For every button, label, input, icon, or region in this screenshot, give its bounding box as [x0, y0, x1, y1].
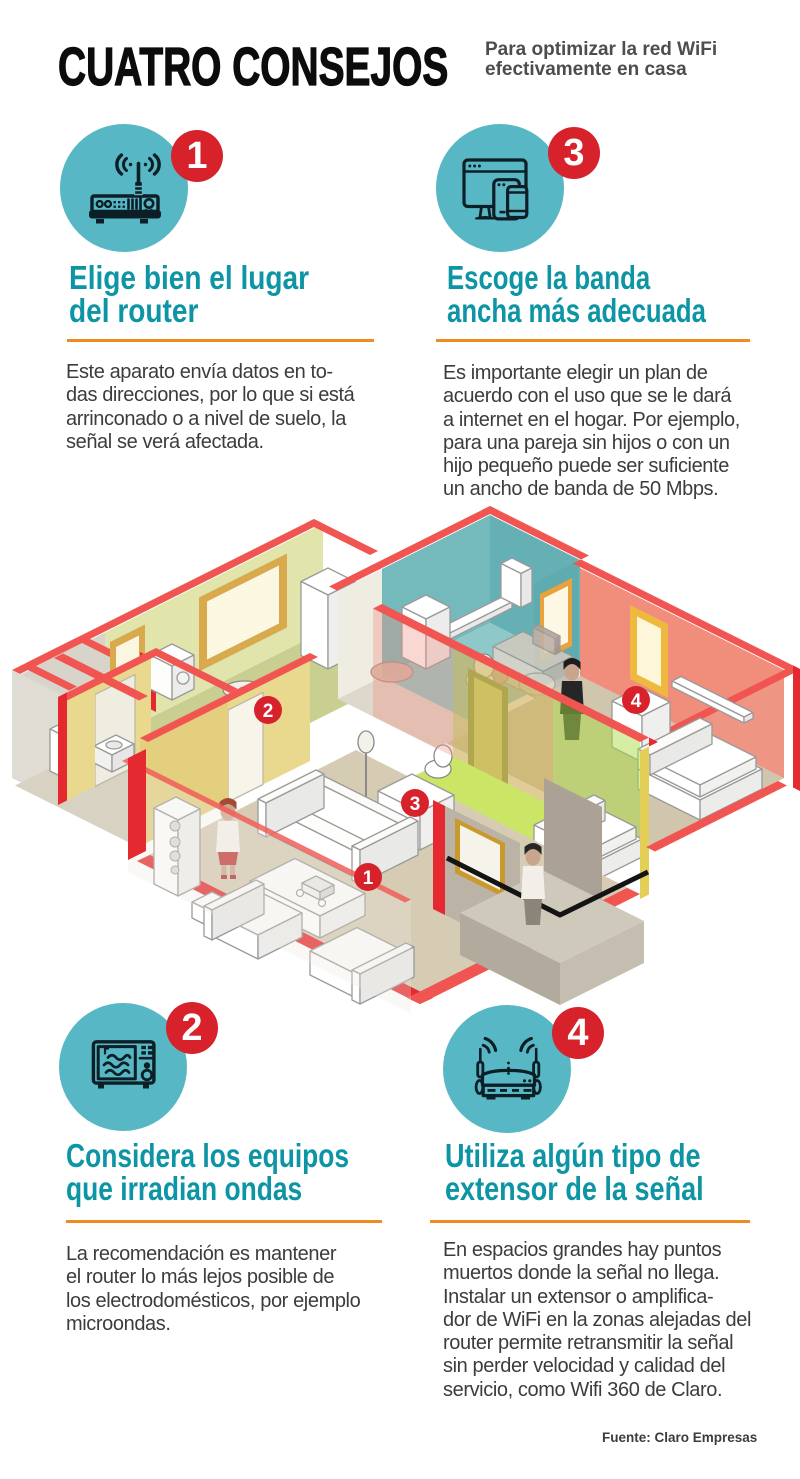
svg-text:3: 3: [410, 794, 421, 815]
svg-text:4: 4: [631, 691, 642, 712]
svg-text:2: 2: [263, 701, 274, 722]
svg-text:1: 1: [363, 868, 374, 889]
